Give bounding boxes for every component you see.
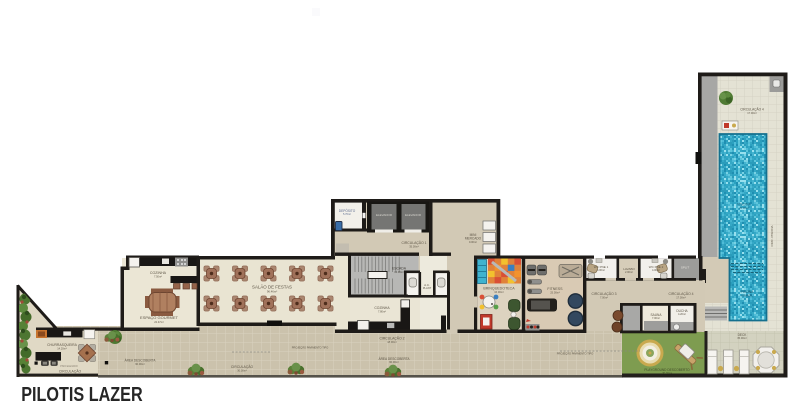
svg-text:INFANTIL: INFANTIL	[741, 293, 753, 297]
svg-text:CHURRASQUEIRA: CHURRASQUEIRA	[47, 343, 78, 347]
svg-text:35.00m²: 35.00m²	[409, 245, 419, 249]
svg-text:ELEVADOR: ELEVADOR	[405, 213, 422, 217]
svg-text:PISO ELEVADO: PISO ELEVADO	[60, 365, 78, 368]
svg-text:SPLIT: SPLIT	[681, 266, 690, 270]
svg-text:22.47m²: 22.47m²	[154, 320, 164, 324]
svg-text:30.00m²: 30.00m²	[237, 368, 247, 372]
svg-text:5.70m²: 5.70m²	[343, 212, 351, 216]
svg-text:PLANT: PLANT	[423, 286, 432, 290]
svg-text:12.00m²: 12.00m²	[394, 270, 404, 274]
svg-text:CIRCULAÇÃO: CIRCULAÇÃO	[59, 368, 82, 373]
svg-text:9.00m²: 9.00m²	[469, 240, 477, 244]
svg-text:35.00m²: 35.00m²	[737, 336, 747, 340]
svg-text:16.00m²: 16.00m²	[494, 290, 504, 294]
svg-text:PISCINA: PISCINA	[737, 203, 751, 207]
svg-text:ESPAÇO GOURMET: ESPAÇO GOURMET	[140, 315, 178, 320]
svg-text:25.00m²: 25.00m²	[739, 206, 749, 210]
svg-text:60.00m²: 60.00m²	[389, 360, 399, 364]
svg-text:PILOTIS LAZER: PILOTIS LAZER	[21, 382, 142, 405]
svg-text:FITNESS: FITNESS	[547, 287, 563, 291]
svg-text:18.00m²: 18.00m²	[387, 340, 397, 344]
svg-text:7.80m²: 7.80m²	[378, 309, 386, 313]
svg-text:CIRCULAÇÃO 2: CIRCULAÇÃO 2	[379, 336, 404, 341]
svg-text:CIRC. PISCINA: CIRC. PISCINA	[770, 225, 774, 246]
svg-text:25.00m²: 25.00m²	[550, 290, 560, 294]
svg-text:ELEVADOR: ELEVADOR	[376, 213, 393, 217]
svg-text:14.20m²: 14.20m²	[57, 346, 67, 350]
svg-text:30.00m²: 30.00m²	[662, 371, 672, 375]
svg-text:CIRCULAÇÃO: CIRCULAÇÃO	[231, 364, 254, 369]
svg-text:2.00m²: 2.00m²	[625, 270, 633, 274]
svg-text:CIRCULAÇÃO 4: CIRCULAÇÃO 4	[740, 107, 764, 112]
svg-text:17.00m²: 17.00m²	[676, 295, 686, 299]
svg-text:MERCADO: MERCADO	[465, 237, 482, 241]
svg-text:7.00m²: 7.00m²	[652, 316, 660, 320]
svg-text:CIRCULAÇÃO 3: CIRCULAÇÃO 3	[591, 291, 616, 296]
svg-text:BRINQUEDOTECA: BRINQUEDOTECA	[483, 287, 515, 291]
svg-text:COZINHA: COZINHA	[374, 306, 390, 310]
svg-text:CIRCULAÇÃO 1: CIRCULAÇÃO 1	[401, 240, 426, 245]
svg-text:CIRCULAÇÃO 4: CIRCULAÇÃO 4	[668, 291, 693, 296]
svg-text:PISCINA: PISCINA	[741, 290, 755, 294]
svg-text:17.00m²: 17.00m²	[747, 111, 757, 115]
svg-text:96.46m²: 96.46m²	[267, 290, 277, 294]
svg-text:7.50m²: 7.50m²	[154, 275, 162, 279]
svg-text:4.20m²: 4.20m²	[678, 312, 686, 316]
svg-text:7.00m²: 7.00m²	[600, 295, 608, 299]
svg-text:COZINHA: COZINHA	[150, 271, 167, 275]
svg-text:4.00m²: 4.00m²	[652, 268, 660, 272]
svg-text:90.00m²: 90.00m²	[135, 362, 145, 366]
svg-text:4.00m²: 4.00m²	[597, 268, 605, 272]
